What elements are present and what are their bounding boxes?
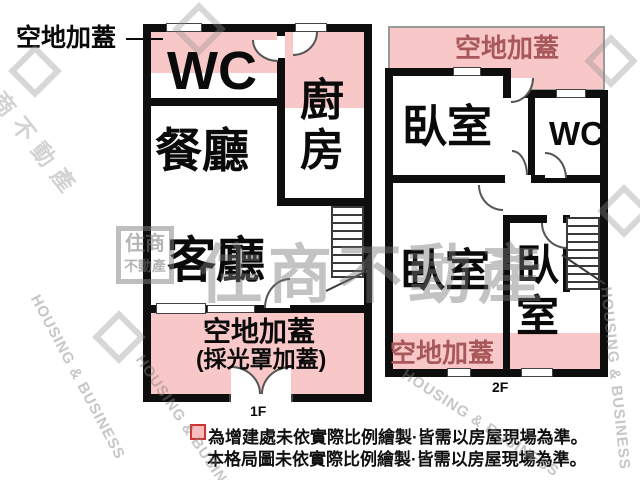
f2-wall-bedroom3-top bbox=[503, 215, 547, 223]
f1-window-top-right bbox=[295, 23, 327, 32]
annotation-covered-label: 空地加蓋 bbox=[16, 26, 116, 51]
brand-watermark-diagonal: 住商不動產 bbox=[0, 58, 91, 205]
f1-covered-subtitle: (採光罩加蓋) bbox=[196, 348, 326, 371]
f2-floor-label: 2F bbox=[492, 380, 508, 394]
f2-bedroom3-label: 臥 室 bbox=[516, 245, 559, 339]
f2-window-bedroom1-top bbox=[453, 67, 481, 76]
f1-room-kitchen-label: 廚 房 bbox=[300, 79, 344, 173]
f2-bedroom2-label: 臥室 bbox=[400, 248, 490, 293]
diamond-watermark-5 bbox=[8, 44, 62, 98]
f2-wall-left bbox=[385, 68, 393, 377]
housing-watermark-1: HOUSING & BUSINESS bbox=[27, 292, 128, 462]
annotation-leader-line bbox=[126, 38, 163, 40]
f1-room-wc-label: WC bbox=[167, 44, 257, 98]
f2-window-bottom-left bbox=[447, 368, 471, 377]
f2-hall-door-gap bbox=[505, 175, 531, 183]
f2-wc-label: WC bbox=[549, 117, 604, 150]
f2-bedroom3-char-2: 室 bbox=[516, 296, 559, 339]
f1-floor-label: 1F bbox=[250, 404, 266, 418]
f1-stairs bbox=[331, 206, 364, 278]
f2-bedroom3-char-1: 臥 bbox=[516, 245, 559, 288]
f1-wall-left bbox=[143, 24, 151, 402]
f2-wall-bedroom1-top bbox=[385, 68, 510, 76]
f2-top-covered-label: 空地加蓋 bbox=[455, 35, 559, 61]
f2-wc-door-arc bbox=[545, 152, 567, 178]
legend-line2: 本格局圖未依實際比例繪製·皆需以房屋現場為準。 bbox=[207, 445, 587, 470]
f2-wall-bedroom-divider bbox=[503, 215, 510, 369]
legend-pink-swatch bbox=[190, 424, 206, 440]
f1-living-door-arc bbox=[264, 278, 290, 308]
f2-window-wc-top bbox=[556, 89, 586, 98]
f1-room-dining-label: 餐廳 bbox=[155, 127, 249, 174]
f1-kitchen-char-2: 房 bbox=[300, 129, 344, 173]
floorplan-canvas: WC 餐廳 廚 房 客廳 空地加蓋 (採光罩加蓋) 1F 空地加蓋 bbox=[0, 0, 640, 480]
f2-window-bottom-right bbox=[521, 368, 553, 377]
f2-bottom-covered-label: 空地加蓋 bbox=[390, 340, 494, 366]
f2-bedroom1-label: 臥室 bbox=[402, 104, 492, 149]
f1-entry-threshold bbox=[229, 394, 293, 402]
f2-wall-bottom bbox=[385, 369, 608, 377]
f2-vestibule-door-arc bbox=[512, 150, 528, 175]
f2-bedroom2-door-arc bbox=[478, 185, 503, 211]
f1-kitchen-char-1: 廚 bbox=[300, 79, 344, 123]
f1-wc-door-gap bbox=[277, 36, 285, 58]
f1-room-living-label: 客廳 bbox=[167, 237, 265, 286]
f1-wall-kitchen-bottom bbox=[277, 198, 372, 206]
f1-covered-title: 空地加蓋 bbox=[203, 318, 315, 346]
f1-wall-right bbox=[364, 24, 372, 402]
f2-wall-middle bbox=[385, 175, 608, 183]
diamond-watermark-4 bbox=[92, 310, 146, 364]
f1-window-top-left bbox=[166, 23, 202, 32]
f2-wall-wc-left bbox=[528, 98, 535, 178]
f1-wall-wc-kitchen-divider bbox=[277, 32, 285, 206]
f1-window-mid-left bbox=[156, 303, 206, 314]
f1-window-mid-right bbox=[207, 305, 255, 313]
